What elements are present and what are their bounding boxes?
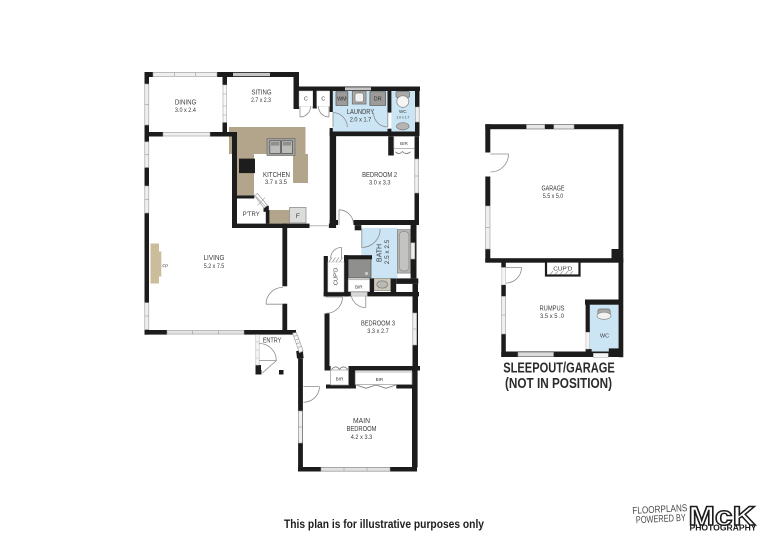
svg-text:BEDROOM: BEDROOM <box>347 426 377 433</box>
svg-text:1.0 x 1.7: 1.0 x 1.7 <box>396 115 410 120</box>
svg-text:DR: DR <box>374 97 382 103</box>
svg-text:CUP'D: CUP'D <box>334 268 340 286</box>
svg-text:5.2 x 7.5: 5.2 x 7.5 <box>204 263 225 270</box>
svg-text:RUMPUS: RUMPUS <box>540 306 565 313</box>
svg-text:3.5 x 5 .0: 3.5 x 5 .0 <box>540 313 564 320</box>
svg-text:BIR: BIR <box>400 141 408 146</box>
svg-text:BEDROOM 2: BEDROOM 2 <box>362 172 397 179</box>
svg-text:C: C <box>321 97 325 103</box>
svg-text:MAIN: MAIN <box>353 418 370 425</box>
svg-text:SITING: SITING <box>252 90 272 97</box>
svg-text:CUP'D: CUP'D <box>553 266 572 272</box>
svg-text:BIR: BIR <box>355 284 363 289</box>
svg-text:LIVING: LIVING <box>204 255 225 262</box>
svg-text:WC: WC <box>399 109 407 114</box>
svg-text:This plan is for illustrative: This plan is for illustrative purposes o… <box>284 519 485 531</box>
svg-text:3.3 x 2.7: 3.3 x 2.7 <box>367 328 389 335</box>
svg-text:BATH: BATH <box>376 244 383 262</box>
svg-text:ENTRY: ENTRY <box>263 337 282 344</box>
svg-text:2.5 x 2.5: 2.5 x 2.5 <box>384 239 391 264</box>
svg-text:WC: WC <box>600 334 609 340</box>
svg-text:BIR: BIR <box>376 377 384 382</box>
svg-text:5.5 x 5.0: 5.5 x 5.0 <box>543 193 564 200</box>
svg-text:FP: FP <box>162 263 168 268</box>
svg-text:2.0 x 1.7: 2.0 x 1.7 <box>350 117 372 124</box>
svg-text:3.7 x 3.5: 3.7 x 3.5 <box>265 179 287 186</box>
svg-text:3.0 x 3.3: 3.0 x 3.3 <box>369 179 391 186</box>
svg-text:DINING: DINING <box>175 100 197 107</box>
svg-text:3.0 x 2.4: 3.0 x 2.4 <box>175 107 196 114</box>
svg-text:KITCHEN: KITCHEN <box>263 172 290 179</box>
svg-text:WM: WM <box>337 97 347 103</box>
svg-text:4.2 x 3.3: 4.2 x 3.3 <box>351 434 373 441</box>
svg-text:PHOTOGRAPHY: PHOTOGRAPHY <box>690 524 758 533</box>
svg-text:BIR: BIR <box>336 376 344 381</box>
svg-text:F: F <box>296 213 300 220</box>
svg-text:SLEEPOUT/GARAGE: SLEEPOUT/GARAGE <box>503 361 615 377</box>
svg-text:(NOT IN POSITION): (NOT IN POSITION) <box>505 376 612 392</box>
svg-text:BEDROOM 3: BEDROOM 3 <box>361 320 395 327</box>
svg-text:GARAGE: GARAGE <box>542 185 565 192</box>
svg-text:LAUNDRY: LAUNDRY <box>347 109 375 116</box>
svg-text:C: C <box>304 97 308 103</box>
svg-text:P'TRY: P'TRY <box>243 212 260 218</box>
svg-text:2.7 x 2.3: 2.7 x 2.3 <box>251 97 271 104</box>
